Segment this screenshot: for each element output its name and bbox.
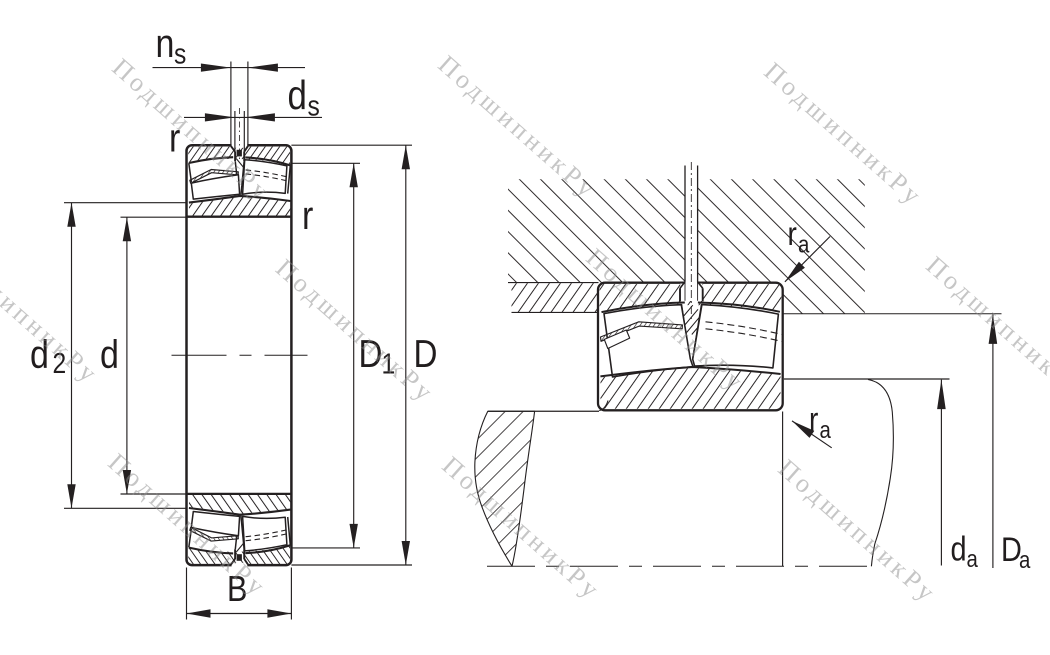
svg-text:d: d [951, 529, 967, 568]
svg-text:r: r [788, 216, 797, 253]
svg-text:d: d [288, 73, 307, 118]
svg-text:n: n [156, 20, 175, 65]
svg-text:s: s [308, 90, 320, 122]
svg-text:r: r [809, 401, 818, 438]
svg-text:a: a [1019, 546, 1031, 573]
svg-text:r: r [302, 192, 313, 237]
svg-text:a: a [798, 231, 810, 258]
svg-text:s: s [174, 38, 186, 70]
svg-text:a: a [967, 545, 979, 572]
svg-text:a: a [820, 416, 832, 443]
